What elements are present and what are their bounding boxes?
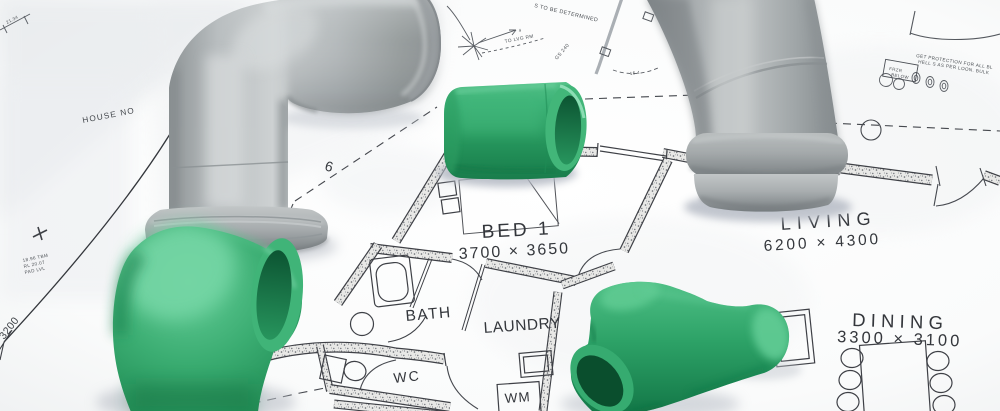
svg-text:WM: WM: [504, 389, 531, 406]
svg-text:BED 1: BED 1: [481, 218, 552, 243]
svg-text:WC: WC: [393, 367, 422, 386]
